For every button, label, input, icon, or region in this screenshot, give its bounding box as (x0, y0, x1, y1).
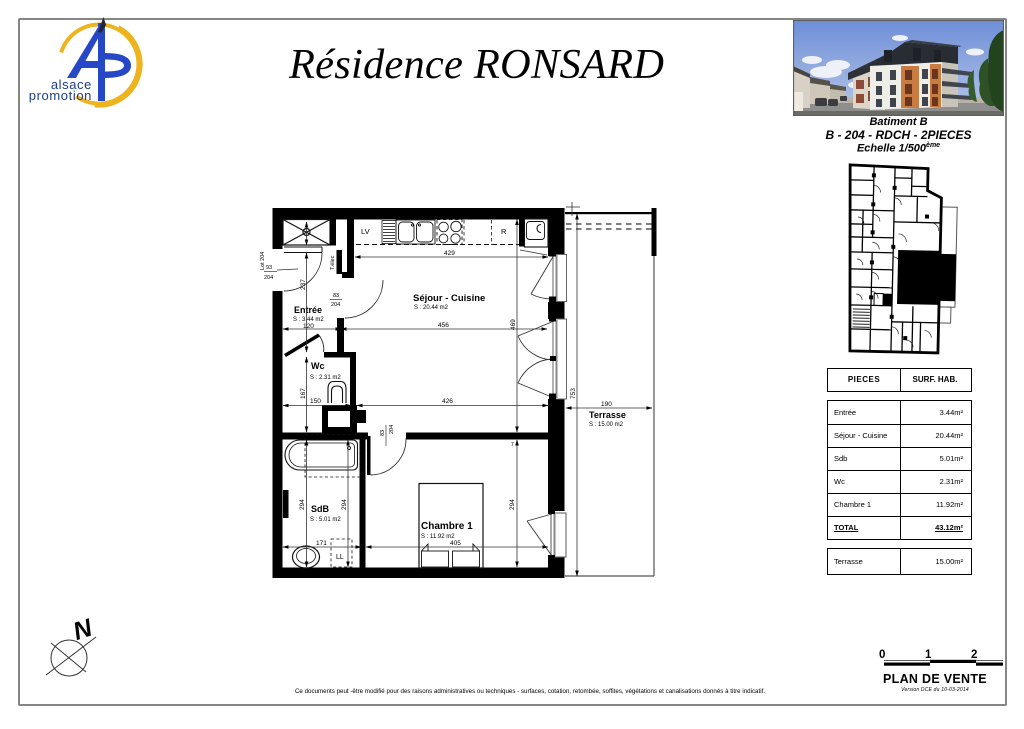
svg-text:83: 83 (380, 430, 386, 436)
svg-text:150: 150 (310, 398, 321, 405)
svg-text:S : 5.01 m2: S : 5.01 m2 (310, 517, 341, 523)
svg-text:SdB: SdB (311, 504, 330, 514)
svg-text:426: 426 (442, 398, 453, 405)
svg-text:237: 237 (300, 279, 307, 290)
svg-text:204: 204 (389, 425, 395, 434)
svg-text:2: 2 (971, 649, 977, 661)
svg-text:456: 456 (438, 322, 449, 329)
svg-text:120: 120 (303, 323, 314, 330)
svg-text:171: 171 (316, 540, 327, 547)
svg-text:S : 15.00 m2: S : 15.00 m2 (589, 422, 624, 428)
svg-text:204: 204 (264, 275, 273, 281)
svg-text:83: 83 (333, 293, 339, 299)
svg-text:429: 429 (444, 250, 455, 257)
svg-text:Terrasse: Terrasse (589, 410, 626, 420)
svg-text:405: 405 (450, 540, 461, 547)
svg-text:Entrée: Entrée (294, 305, 322, 315)
svg-text:R: R (501, 227, 507, 236)
svg-text:Wc: Wc (311, 361, 325, 371)
svg-text:S : 2.31 m2: S : 2.31 m2 (310, 375, 341, 381)
svg-text:469: 469 (510, 319, 517, 330)
svg-text:LL: LL (336, 554, 344, 561)
svg-text:204: 204 (331, 302, 340, 308)
svg-text:7: 7 (511, 442, 514, 448)
svg-text:294: 294 (341, 499, 348, 510)
svg-text:190: 190 (601, 401, 612, 408)
svg-text:294: 294 (509, 499, 516, 510)
svg-text:LV: LV (361, 227, 370, 236)
svg-text:294: 294 (299, 499, 306, 510)
svg-text:1: 1 (925, 649, 932, 661)
svg-text:167: 167 (300, 388, 307, 399)
svg-text:93: 93 (266, 265, 272, 271)
svg-text:T.élec: T.élec (330, 255, 336, 270)
svg-text:S : 20.44 m2: S : 20.44 m2 (414, 305, 449, 311)
svg-text:753: 753 (570, 388, 577, 399)
svg-text:0: 0 (879, 649, 885, 661)
svg-text:Chambre 1: Chambre 1 (421, 521, 473, 532)
svg-text:Séjour - Cuisine: Séjour - Cuisine (413, 293, 485, 304)
